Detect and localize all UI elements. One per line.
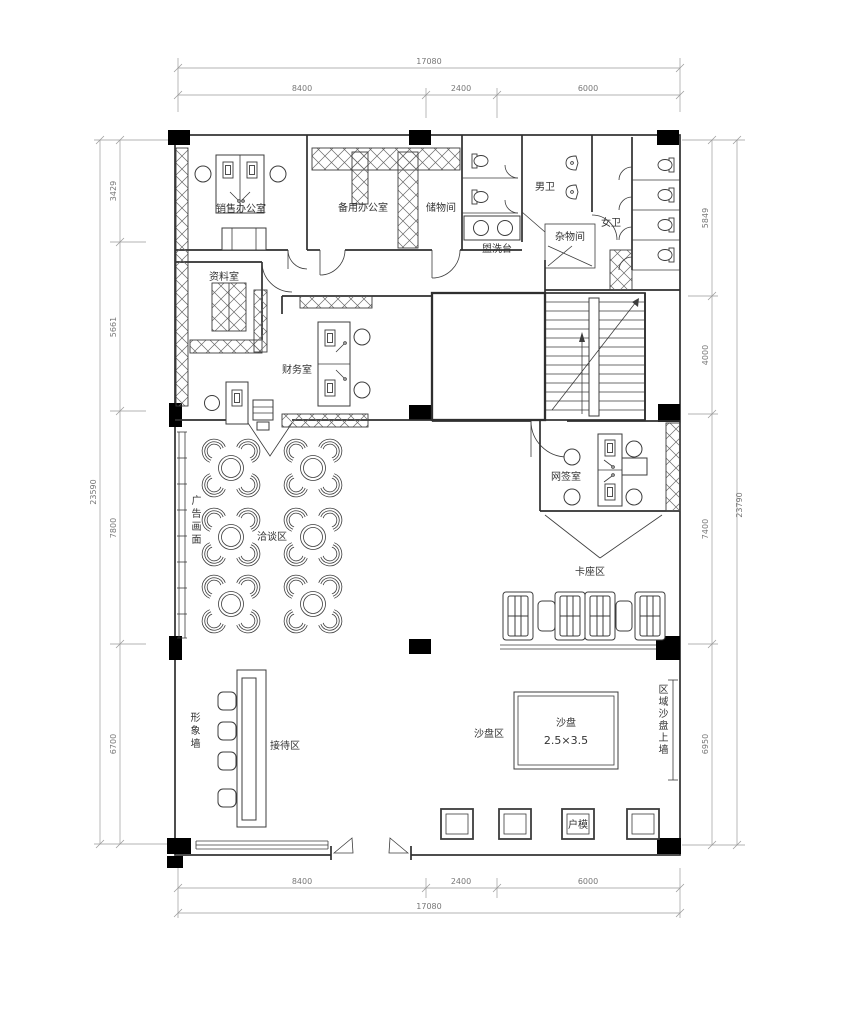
label-ad-wall: 广告画面 <box>189 495 199 575</box>
label-image-wall: 形象墙 <box>188 712 198 774</box>
dim-bottom-seg3: 6000 <box>578 877 598 886</box>
label-mens-wc: 男卫 <box>535 181 555 193</box>
dim-left-seg2: 5661 <box>109 317 118 337</box>
dim-left-total: 23590 <box>89 479 98 504</box>
label-womens-wc: 女卫 <box>601 216 621 229</box>
dim-top-seg2: 2400 <box>451 84 471 93</box>
dim-right-total: 23790 <box>735 492 744 517</box>
reception-furniture <box>218 670 266 827</box>
label-finance: 财务室 <box>282 363 312 376</box>
dim-left-seg1: 3429 <box>109 181 118 201</box>
label-sand-size: 2.5×3.5 <box>544 734 588 747</box>
dim-right-seg4: 6950 <box>701 734 710 754</box>
sales-office-furniture <box>195 155 286 250</box>
dim-bottom-total: 17080 <box>416 902 441 911</box>
dim-left-seg4: 6700 <box>109 734 118 754</box>
dim-right-seg3: 7400 <box>701 519 710 539</box>
dim-bottom-seg2: 2400 <box>451 877 471 886</box>
label-wash-counter: 盥洗台 <box>482 242 512 255</box>
dim-right-seg1: 5849 <box>701 208 710 228</box>
room-labels: 销售办公室 备用办公室 储物间 盥洗台 男卫 杂物间 女卫 资料室 财务室 洽谈… <box>209 181 621 831</box>
label-sand-area: 沙盘区 <box>474 727 504 740</box>
label-signing: 网签室 <box>551 470 581 483</box>
label-sales-office: 销售办公室 <box>216 202 266 215</box>
dim-top-seg1: 8400 <box>292 84 312 93</box>
dim-top-seg3: 6000 <box>578 84 598 93</box>
dim-bottom-seg1: 8400 <box>292 877 312 886</box>
label-backup-office: 备用办公室 <box>338 201 388 214</box>
booth-furniture <box>503 592 665 640</box>
floor-plan-canvas: 17080 8400 2400 6000 8400 2400 6000 1708… <box>0 0 860 1021</box>
label-reception: 接待区 <box>270 739 300 752</box>
stairwell <box>545 293 645 420</box>
label-negotiation: 洽谈区 <box>257 530 287 543</box>
floor-void <box>432 293 545 420</box>
label-sundries: 杂物间 <box>555 230 585 243</box>
label-sand-table: 沙盘 <box>556 716 576 729</box>
label-booth: 卡座区 <box>575 565 605 578</box>
sand-table-furniture <box>441 692 659 839</box>
dim-left-seg3: 7800 <box>109 518 118 538</box>
label-storage: 储物间 <box>426 201 456 214</box>
floor-plan-svg: 17080 8400 2400 6000 8400 2400 6000 1708… <box>0 0 860 1021</box>
label-archive: 资料室 <box>209 270 239 283</box>
dim-right-seg2: 4000 <box>701 345 710 365</box>
label-unit-model: 户模 <box>568 818 588 831</box>
label-regional-wall: 区域沙盘上墙 <box>656 684 666 784</box>
signing-room-furniture <box>564 434 647 506</box>
dim-top-total: 17080 <box>416 57 441 66</box>
